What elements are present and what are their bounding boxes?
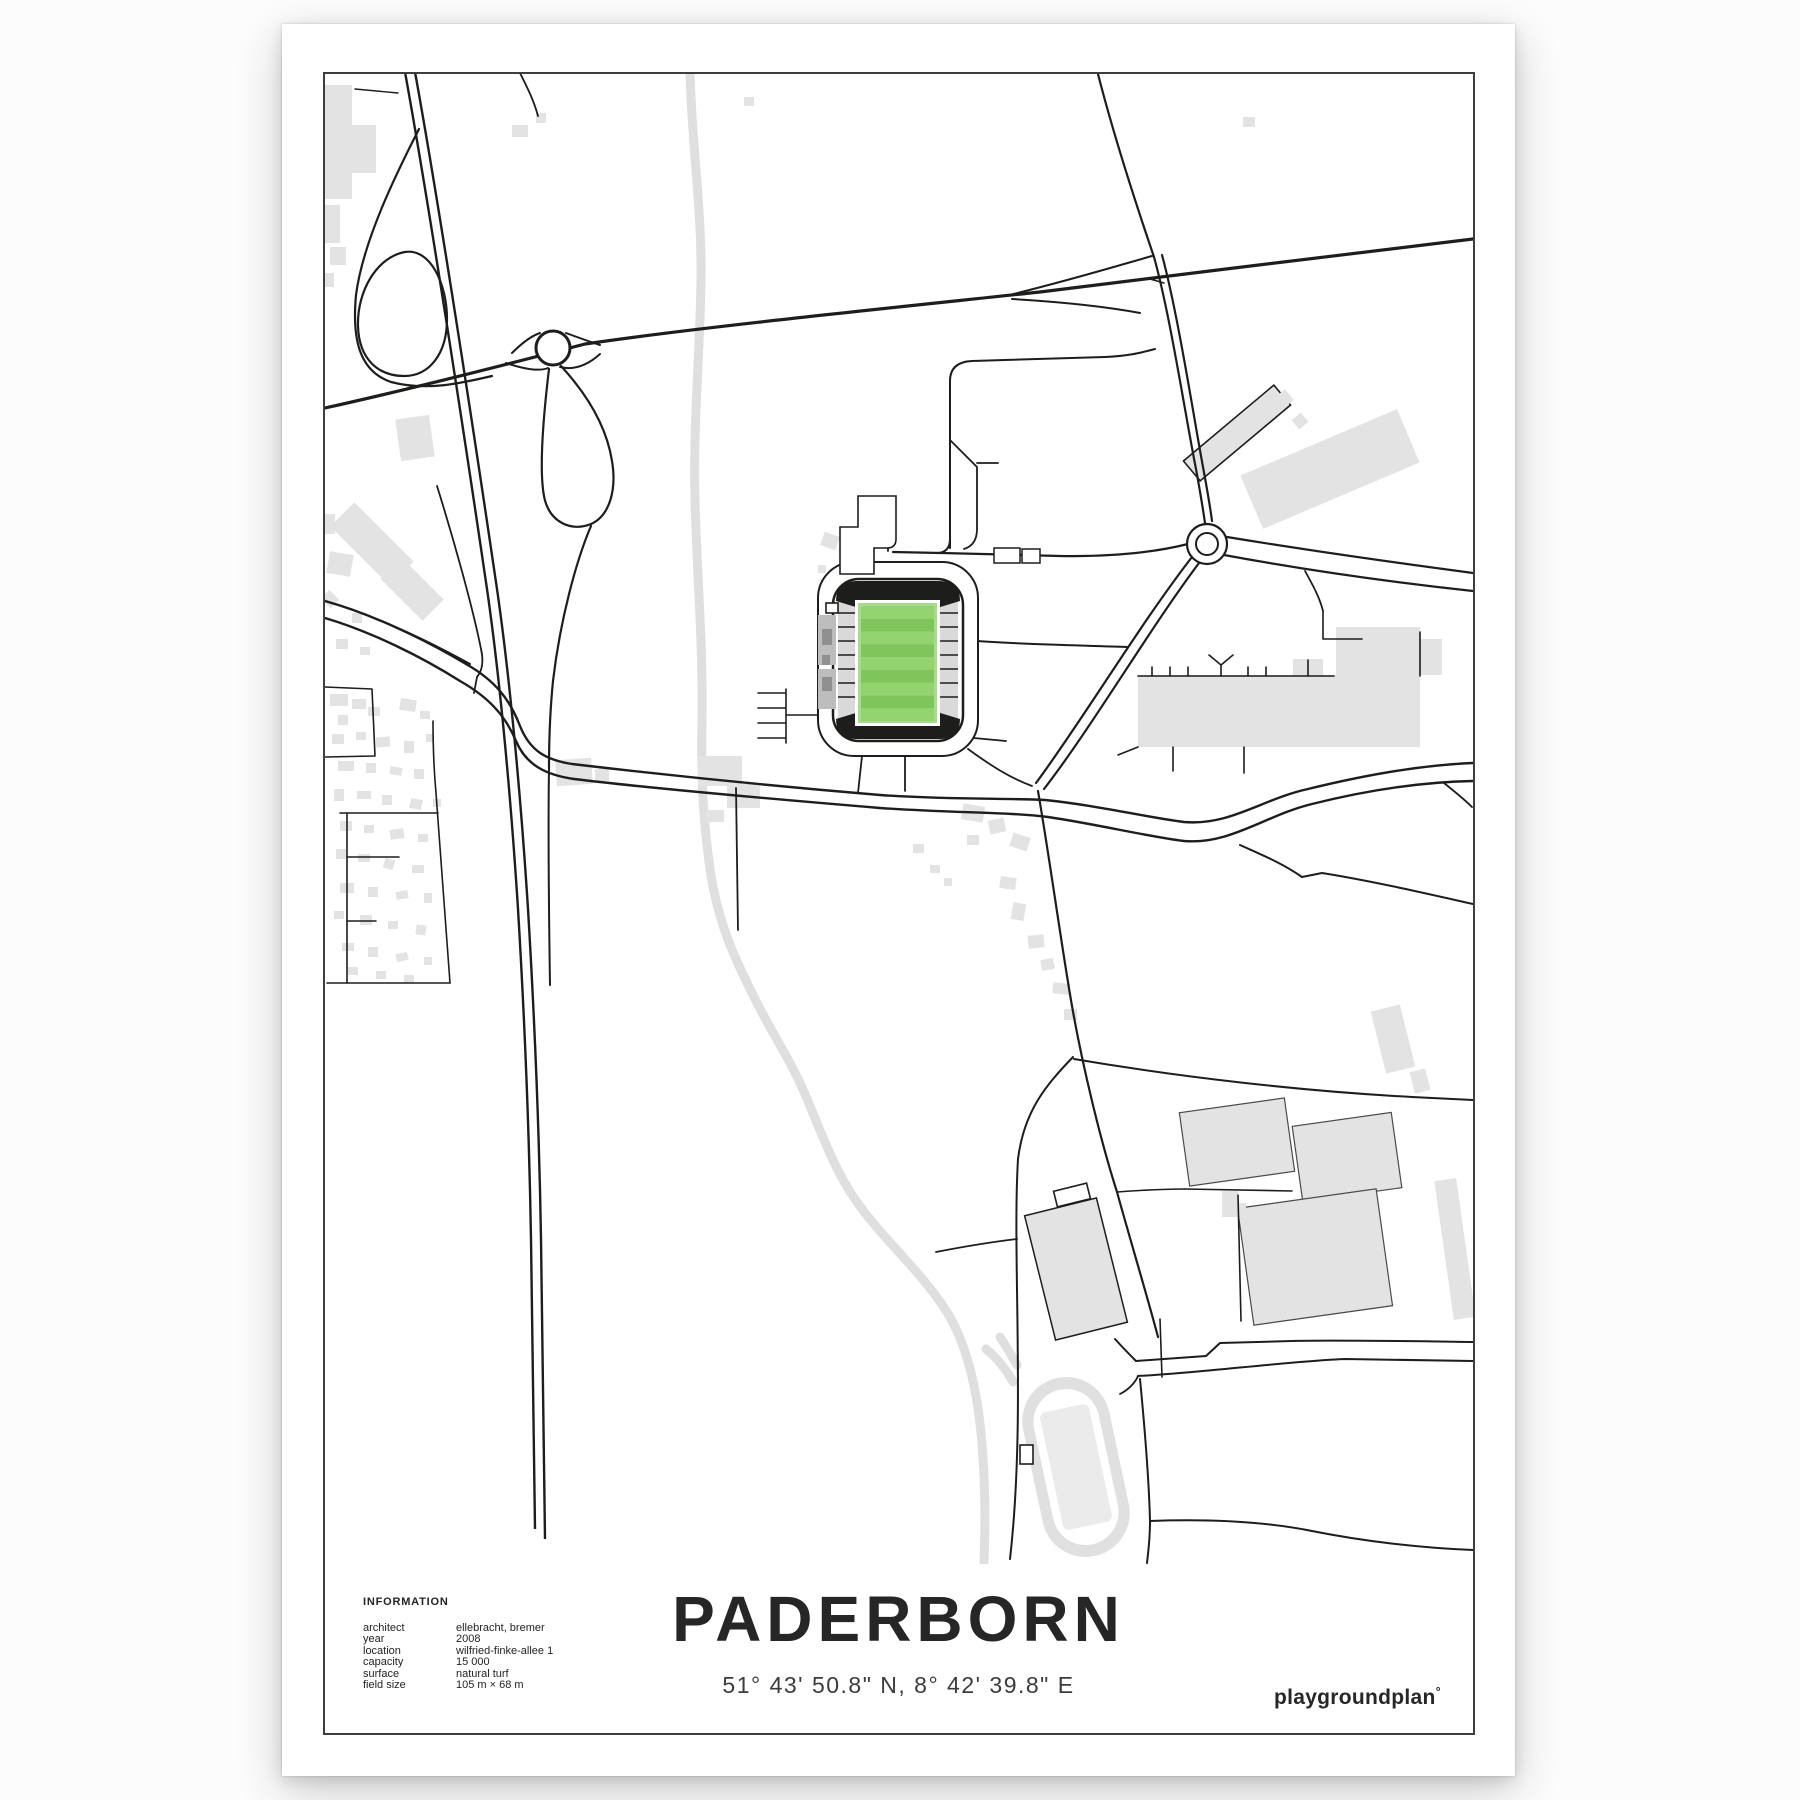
highway	[325, 239, 1473, 408]
sports-hall	[1025, 1198, 1128, 1340]
poster-title: PADERBORN	[282, 1587, 1515, 1651]
running-track	[1014, 1369, 1138, 1564]
parking-rows	[758, 689, 818, 743]
bus-platform	[1022, 549, 1040, 563]
brand-logo: playgroundplan°	[1274, 1686, 1441, 1710]
page-background: { "poster": { "title": "PADERBORN", "coo…	[0, 0, 1800, 1800]
brand-text: playgroundplan	[1274, 1686, 1436, 1709]
info-row-capacity: capacity 15 000	[363, 1657, 703, 1668]
roads-layer	[325, 74, 1473, 1563]
railway-line	[405, 74, 545, 1539]
map-frame	[323, 72, 1475, 1735]
brand-degree-mark: °	[1436, 1685, 1441, 1699]
poster: INFORMATION architect ellebracht, bremer…	[282, 24, 1515, 1776]
bus-platform	[994, 548, 1020, 563]
stadium-map	[325, 74, 1473, 1564]
roundabout-west	[536, 331, 570, 365]
stadium	[818, 496, 978, 756]
roundabout-east	[1187, 524, 1227, 564]
stadium-pitch	[855, 600, 940, 726]
